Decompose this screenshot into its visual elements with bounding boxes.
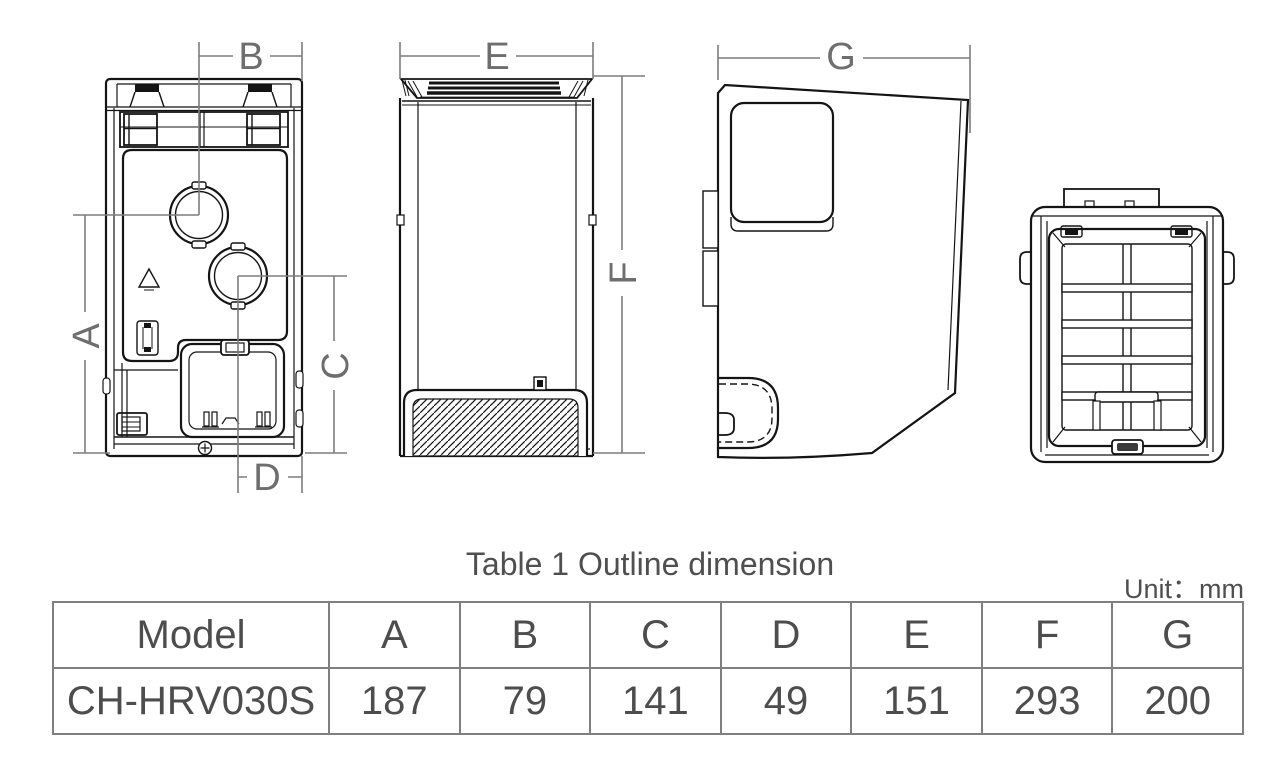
cell-B: 79 [460,668,591,734]
side-view: E F [397,36,645,456]
header-D: D [721,602,852,668]
dim-label-A: A [66,323,108,349]
dim-label-B: B [238,36,263,78]
side-profile-view: G [703,36,970,458]
intake-grille [404,377,587,456]
header-B: B [460,602,591,668]
header-model: Model [53,602,329,668]
cell-A: 187 [329,668,460,734]
table-data-row: CH-HRV030S 187 79 141 49 151 293 200 [53,668,1243,734]
dim-label-C: C [315,352,357,379]
cell-C: 141 [590,668,721,734]
header-E: E [851,602,982,668]
figure-page: B A C D [0,0,1270,757]
front-view: B A C D [66,36,357,499]
cell-E: 151 [851,668,982,734]
header-F: F [982,602,1113,668]
filter-latch [1112,440,1143,454]
header-G: G [1112,602,1243,668]
outline-dimension-table: Model A B C D E F G CH-HRV030S 187 79 14… [52,601,1244,735]
cell-model: CH-HRV030S [53,668,329,734]
outline-dimension-drawing: B A C D [0,0,1270,540]
header-A: A [329,602,460,668]
dim-label-F: F [603,261,645,284]
cell-G: 200 [1112,668,1243,734]
cell-F: 293 [982,668,1113,734]
dim-label-D: D [253,457,280,499]
dim-label-E: E [484,36,509,78]
table-title: Table 1 Outline dimension [300,546,1000,583]
header-C: C [590,602,721,668]
table-header-row: Model A B C D E F G [53,602,1243,668]
screw-icon [199,442,212,455]
back-filter-view [1020,189,1234,462]
dim-label-G: G [826,36,856,78]
cell-D: 49 [721,668,852,734]
